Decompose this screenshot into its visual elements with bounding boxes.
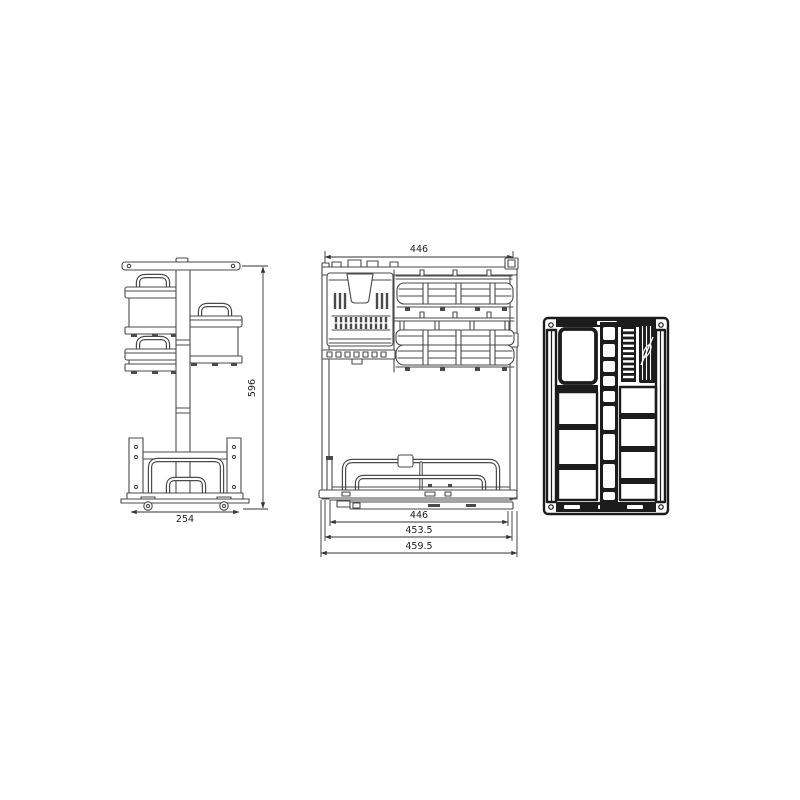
pullout-base [319, 455, 517, 498]
shelf-tier-2 [394, 312, 514, 371]
plan-basket-top-left [560, 329, 596, 383]
plan-view [544, 318, 668, 514]
front-view: 446 [319, 244, 518, 557]
dim-label-446-bottom: 446 [410, 510, 428, 521]
drawing-canvas: 596 254 446 [0, 0, 800, 800]
dim-side-base-width: 254 [131, 512, 239, 525]
side-basket-right [185, 305, 242, 366]
cutlery-basket [327, 273, 393, 346]
dim-label-459-5: 459.5 [405, 541, 432, 552]
center-post [176, 270, 190, 498]
cutlery-basket-feet-rail [322, 350, 395, 364]
plan-slotted-rack [621, 326, 636, 382]
side-view: 596 254 [121, 258, 268, 525]
slide-rail [330, 500, 513, 509]
dim-side-height: 596 [242, 266, 268, 509]
dim-label-453-5: 453.5 [405, 525, 432, 536]
dim-label-446-top: 446 [410, 244, 428, 255]
technical-drawing: 596 254 446 [0, 0, 800, 800]
plan-center-rail [600, 322, 618, 510]
side-basket-upper-left [125, 276, 182, 337]
plan-board-panel [639, 323, 656, 383]
dim-label-254: 254 [176, 514, 194, 525]
side-basket-lower-left [125, 338, 182, 374]
shelf-tier-1 [396, 270, 513, 311]
dim-label-596: 596 [247, 379, 258, 397]
